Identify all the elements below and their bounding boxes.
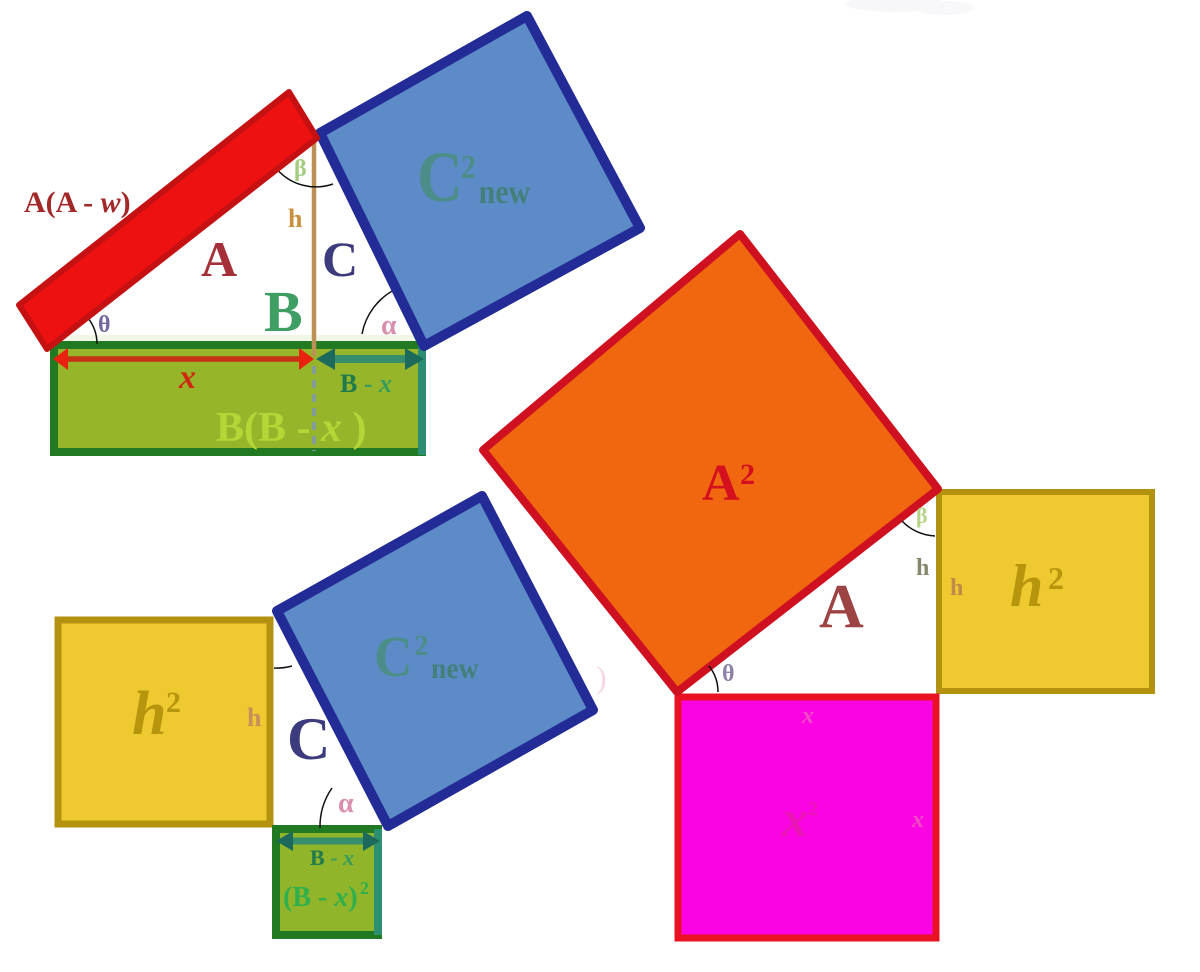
svg-text:α: α [381,310,397,341]
svg-text:β: β [916,503,928,528]
svg-text:B - x: B - x [310,845,354,870]
svg-text:new: new [479,172,531,210]
svg-text:x: x [178,359,196,396]
svg-text:C: C [417,137,463,217]
svg-text:B: B [264,279,303,344]
svg-text:A: A [702,455,740,512]
svg-text:C: C [322,231,358,287]
svg-text:θ: θ [98,312,111,338]
svg-text:(B - x): (B - x) [283,882,358,913]
svg-text:h: h [247,703,262,732]
svg-text:x: x [781,791,808,848]
svg-text:β: β [294,156,307,182]
svg-text:B - x: B - x [340,369,392,398]
svg-text:2: 2 [414,629,428,662]
svg-text:x: x [801,703,814,729]
svg-text:h: h [288,204,303,233]
svg-text:h: h [950,575,963,601]
svg-text:2: 2 [740,458,755,491]
svg-text:x: x [911,807,924,833]
svg-text:θ: θ [722,661,735,687]
svg-text:A(A - w): A(A - w) [24,186,131,219]
svg-text:C: C [374,625,413,690]
svg-text:2: 2 [1048,560,1064,596]
svg-text:2: 2 [360,878,369,898]
svg-text:h: h [916,555,929,581]
svg-text:2: 2 [461,147,476,185]
svg-text:A: A [201,231,237,287]
svg-text:): ) [596,659,607,695]
svg-text:A: A [819,573,864,641]
svg-text:α: α [338,788,354,819]
svg-text:h: h [1010,553,1043,619]
svg-text:2: 2 [808,798,818,820]
svg-text:B(B - x ): B(B - x ) [216,405,367,451]
svg-text:new: new [431,652,479,685]
svg-text:h: h [132,680,166,748]
svg-text:C: C [287,706,330,772]
svg-text:2: 2 [166,686,181,719]
